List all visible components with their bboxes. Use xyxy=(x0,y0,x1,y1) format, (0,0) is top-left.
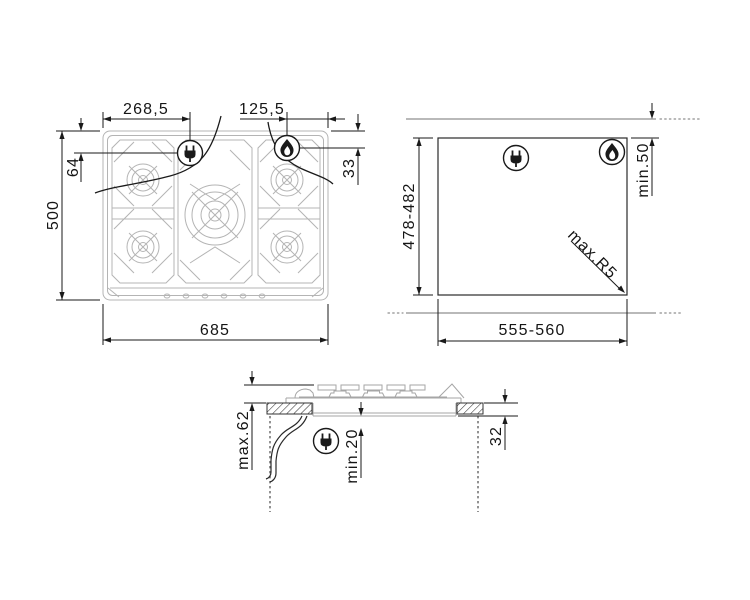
power-cable xyxy=(266,416,302,479)
hob-top-view: 268,5 125,5 64 500 33 xyxy=(45,101,365,345)
dim-label: 555-560 xyxy=(498,322,565,339)
grate-left xyxy=(112,140,174,283)
dim-clearance-below: min.20 xyxy=(344,402,364,484)
power-cable xyxy=(270,416,307,482)
worktop-section-left xyxy=(267,403,312,414)
diagram-canvas: 268,5 125,5 64 500 33 xyxy=(0,0,750,600)
dim-label: 32 xyxy=(488,426,505,446)
dim-label: 500 xyxy=(45,200,62,230)
dim-label: 685 xyxy=(200,322,230,339)
installation-diagram: 268,5 125,5 64 500 33 xyxy=(0,0,750,600)
dim-left-to-plug: 268,5 xyxy=(103,101,190,140)
plug-icon xyxy=(504,146,529,171)
dim-label: 268,5 xyxy=(123,101,169,118)
dim-label: 33 xyxy=(341,158,358,178)
dim-cutout-depth: 478-482 xyxy=(401,138,433,295)
dim-label: min.50 xyxy=(635,142,652,197)
plug-icon xyxy=(314,429,339,454)
dim-cutout-width: 555-560 xyxy=(438,299,627,346)
flame-icon xyxy=(275,136,300,161)
dim-top-to-plug: 64 xyxy=(56,118,177,182)
dim-below-worktop: 32 xyxy=(458,389,518,450)
dim-width: 685 xyxy=(103,304,328,345)
grate-profile xyxy=(318,385,425,397)
hob-section-profile xyxy=(286,384,464,416)
burner-bottom-left xyxy=(127,231,159,263)
dim-depth: 500 xyxy=(45,131,100,300)
dim-top-to-flame: 33 xyxy=(300,114,365,185)
flame-icon xyxy=(600,140,625,165)
dim-wall-distance: min.50 xyxy=(631,103,659,198)
worktop-cutout-view: 478-482 555-560 min.50 max.R5 xyxy=(388,103,700,346)
worktop-section-right xyxy=(457,403,483,414)
dim-label: 125,5 xyxy=(239,101,285,118)
plug-icon xyxy=(178,141,203,166)
burner-bottom-right xyxy=(271,231,303,263)
side-section-view: max.62 min.20 32 xyxy=(235,371,518,512)
dim-label: max.62 xyxy=(235,410,252,470)
burner-top-right xyxy=(271,164,303,196)
dim-label: min.20 xyxy=(344,428,361,483)
dim-label: 64 xyxy=(65,157,82,177)
dim-flame-to-right: 125,5 xyxy=(239,101,345,135)
burner-center xyxy=(185,185,245,245)
dim-above-worktop: max.62 xyxy=(235,371,314,470)
dim-label: 478-482 xyxy=(401,182,418,249)
